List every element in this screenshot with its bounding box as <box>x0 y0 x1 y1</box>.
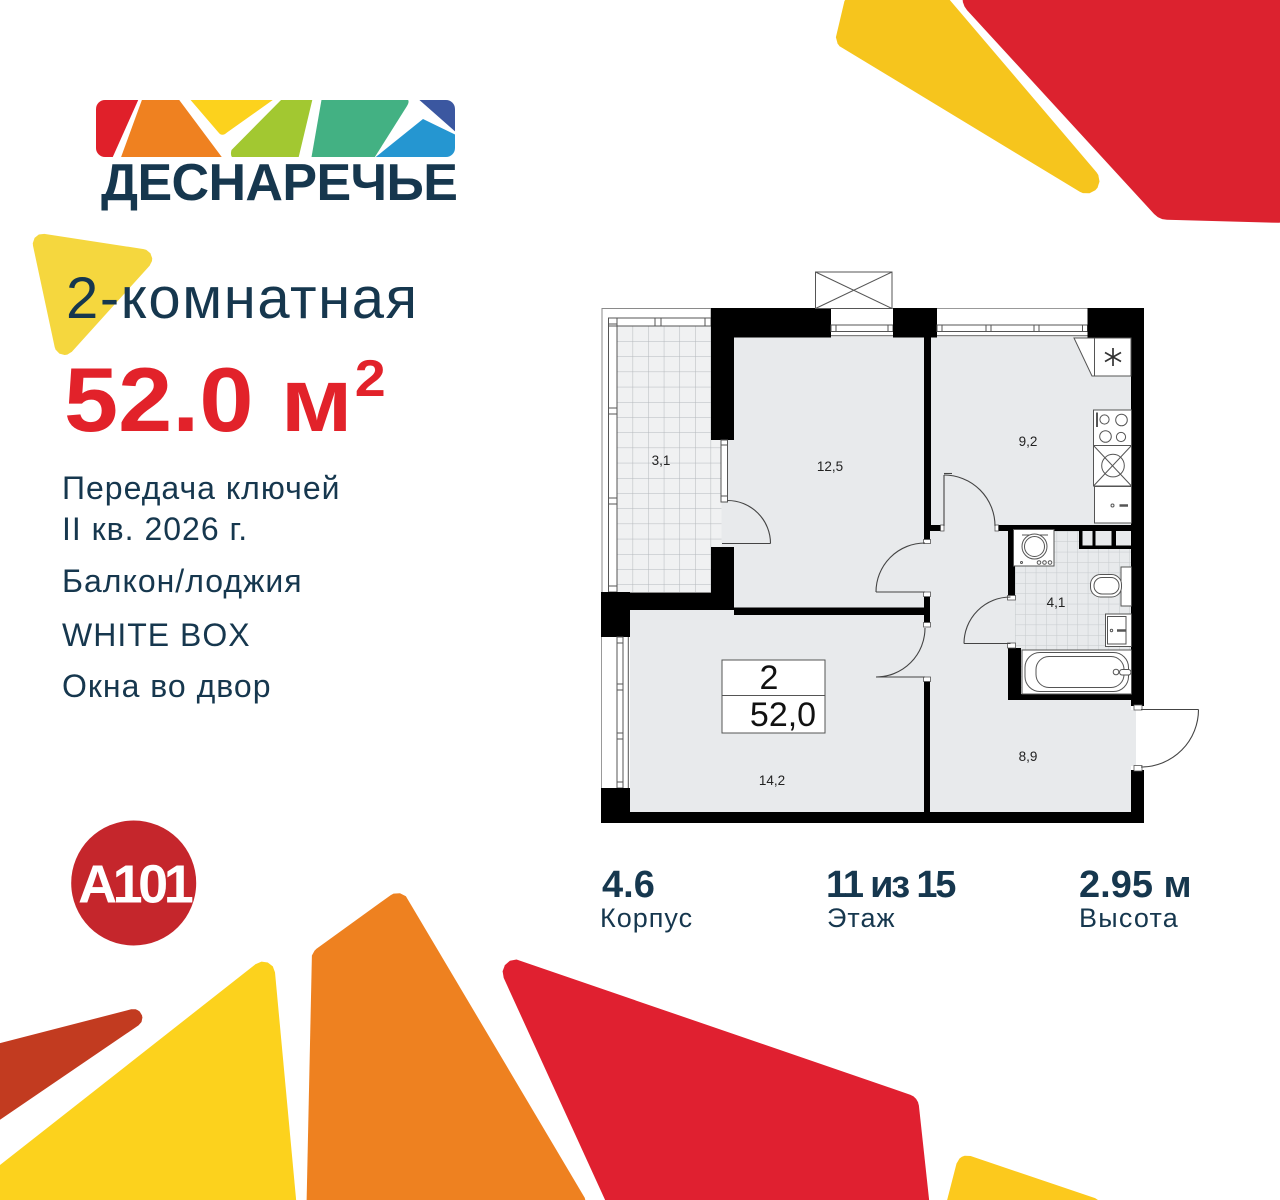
svg-text:12,5: 12,5 <box>817 459 843 474</box>
svg-text:2: 2 <box>760 659 779 697</box>
svg-text:9,2: 9,2 <box>1019 434 1038 449</box>
svg-text:8,9: 8,9 <box>1019 749 1038 764</box>
svg-text:4,1: 4,1 <box>1047 595 1066 610</box>
svg-text:52,0: 52,0 <box>750 696 816 734</box>
svg-text:А101: А101 <box>78 855 193 915</box>
svg-text:3,1: 3,1 <box>652 453 671 468</box>
svg-text:14,2: 14,2 <box>759 773 785 788</box>
